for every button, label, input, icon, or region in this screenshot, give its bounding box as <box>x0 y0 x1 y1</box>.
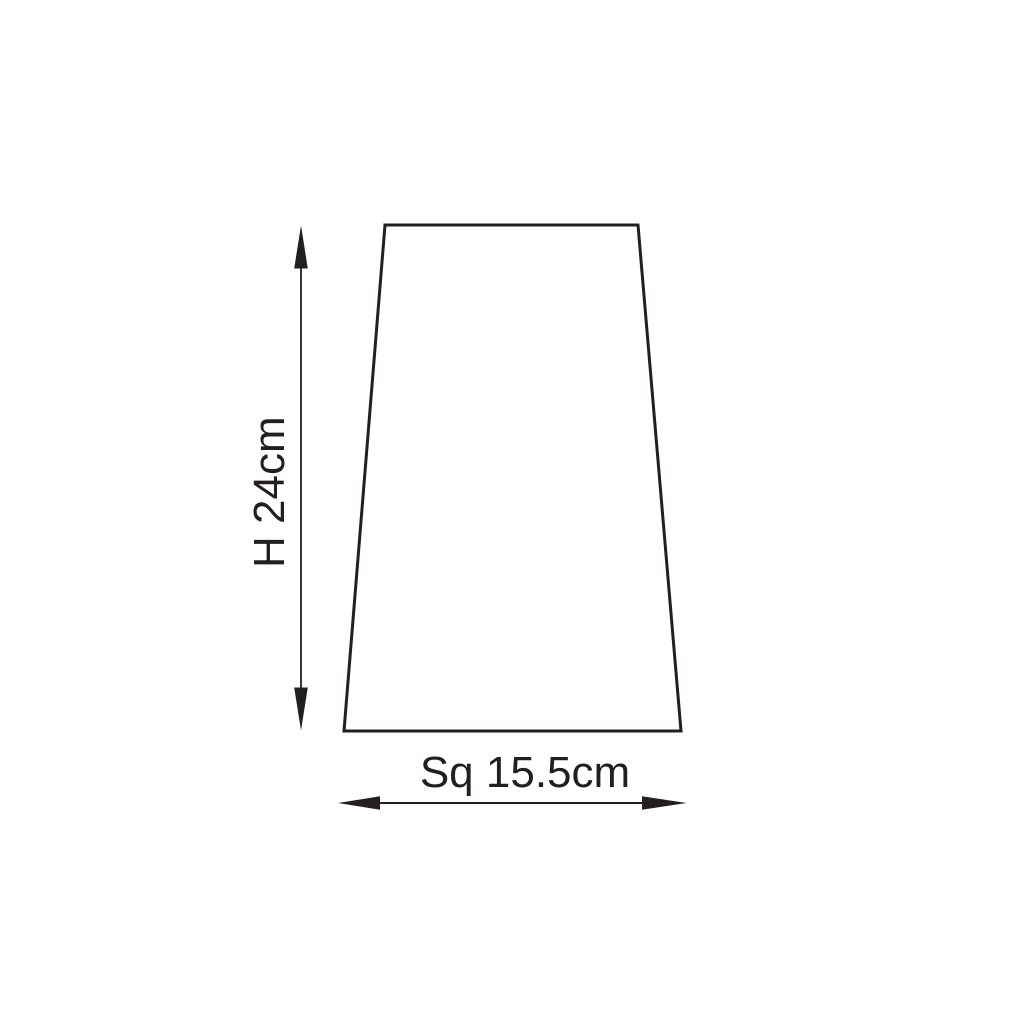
svg-text:H 24cm: H 24cm <box>245 416 294 568</box>
svg-text:Sq 15.5cm: Sq 15.5cm <box>420 748 630 797</box>
